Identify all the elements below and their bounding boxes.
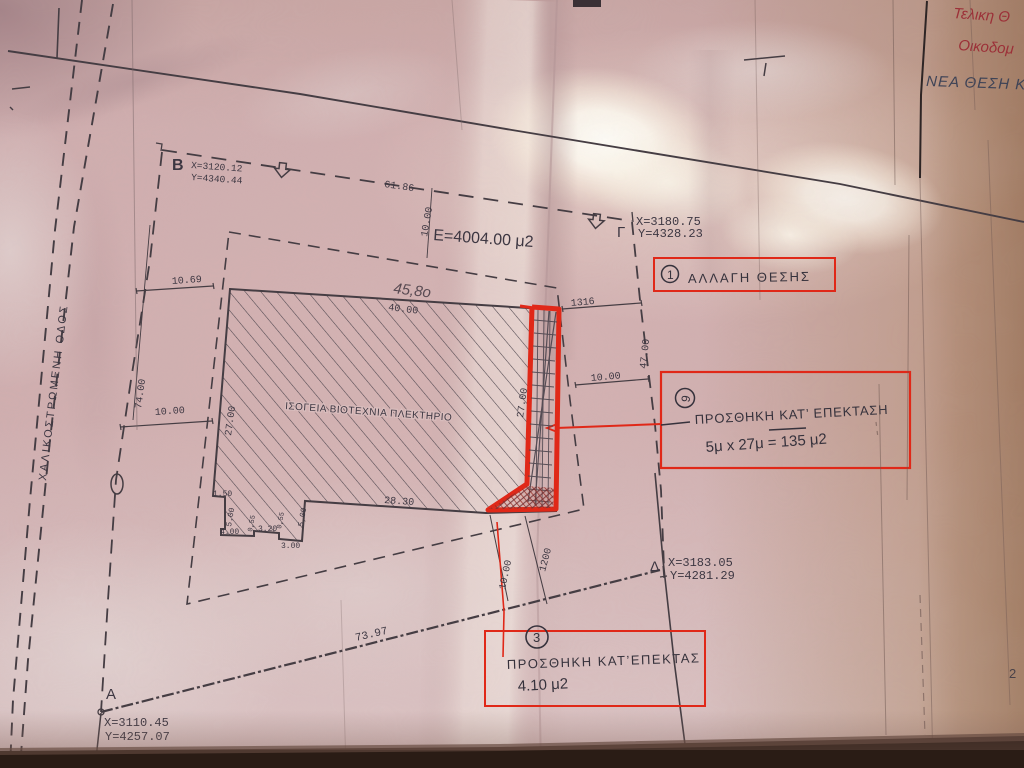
svg-text:2: 2 (1009, 666, 1016, 681)
svg-text:28.30: 28.30 (384, 496, 415, 509)
svg-text:3.20: 3.20 (258, 525, 277, 534)
svg-text:4.10 μ2: 4.10 μ2 (517, 675, 568, 695)
svg-text:4.00: 4.00 (220, 528, 239, 537)
svg-text:ΑΛΛΑΓΗ ΘΕΣΗΣ: ΑΛΛΑΓΗ ΘΕΣΗΣ (688, 269, 811, 286)
svg-text:10.69: 10.69 (172, 275, 203, 288)
svg-text:Y=4281.29: Y=4281.29 (670, 569, 735, 583)
svg-text:1316: 1316 (570, 297, 595, 310)
svg-text:ΝΕΑ ΘΕΣΗ Κ: ΝΕΑ ΘΕΣΗ Κ (926, 73, 1024, 93)
svg-text:A: A (106, 686, 116, 703)
svg-text:X=3183.05: X=3183.05 (668, 556, 733, 570)
svg-text:Δ: Δ (650, 558, 659, 574)
svg-text:1.50: 1.50 (213, 490, 232, 499)
svg-text:B: B (172, 157, 184, 174)
svg-text:1: 1 (667, 268, 674, 282)
svg-text:Y=4328.23: Y=4328.23 (638, 227, 703, 241)
svg-text:3: 3 (533, 630, 540, 645)
svg-text:3.00: 3.00 (281, 542, 300, 551)
svg-text:Γ: Γ (617, 224, 625, 241)
svg-text:10.00: 10.00 (155, 406, 186, 419)
